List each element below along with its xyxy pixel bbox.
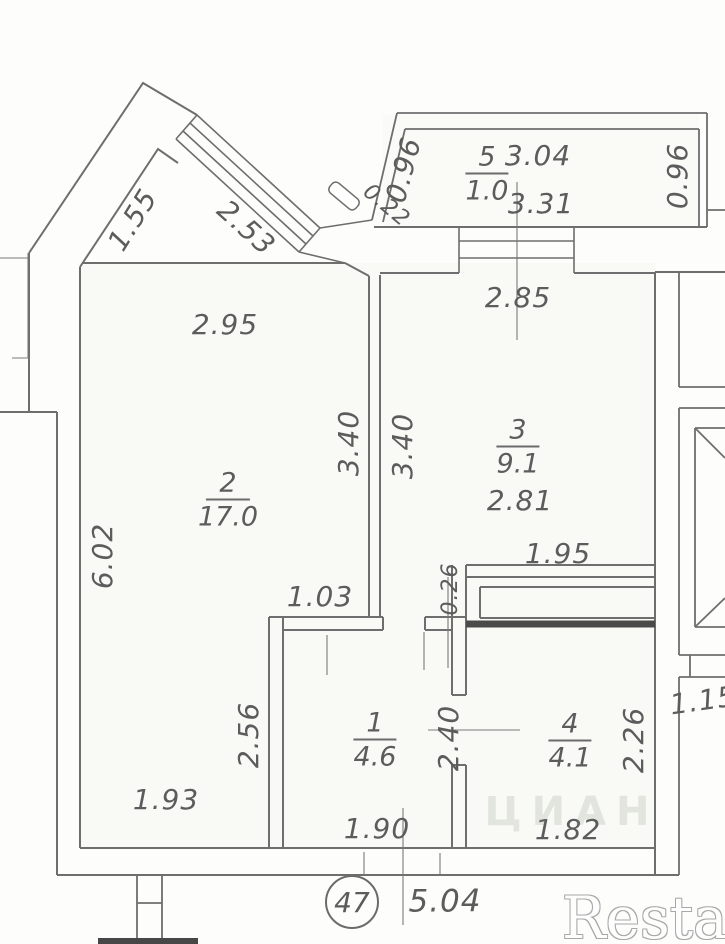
room-label-balcony: 5 1.0 <box>465 144 508 205</box>
dim-duct: 0.26 <box>440 563 462 616</box>
room-number: 2 <box>206 470 249 501</box>
dim-total-bottom: 5.04 <box>408 887 481 918</box>
dim-hall-wall: 2.40 <box>435 705 463 771</box>
dim-wall-kitchen-side: 3.40 <box>389 413 417 479</box>
dim-hall-bottom: 1.90 <box>344 815 410 843</box>
room-number: 4 <box>548 711 591 742</box>
entrance-stub <box>98 875 198 944</box>
floor-plan-page: 1.55 2.53 0.96 0.22 3.04 3.31 0.96 2.85 … <box>0 0 725 944</box>
dim-kitchen-top: 2.85 <box>485 284 551 312</box>
room-number: 3 <box>496 417 539 448</box>
dim-hall-left: 2.56 <box>235 702 263 768</box>
dim-living-bottom: 1.93 <box>133 786 199 814</box>
apartment-number-badge: 47 <box>325 875 379 929</box>
dim-living-top: 2.95 <box>192 311 258 339</box>
room-label-kitchen: 3 9.1 <box>496 417 539 478</box>
watermark-restate: Restate <box>562 884 725 944</box>
dim-balcony-top: 3.04 <box>505 142 571 170</box>
watermark-cian: ЦИАН <box>484 789 659 835</box>
dim-left-wall: 6.02 <box>89 523 117 589</box>
room-number: 5 <box>465 144 508 175</box>
room-label-bathroom: 4 4.1 <box>548 711 591 772</box>
dim-balcony-bottom: 3.31 <box>508 190 574 218</box>
dim-bath-right: 2.26 <box>620 707 648 773</box>
dim-wall-living-side: 3.40 <box>335 410 363 476</box>
dim-right-side: 1.15 <box>668 683 725 720</box>
room-area: 17.0 <box>198 501 258 531</box>
dim-kitchen-bottom: 1.95 <box>525 540 591 568</box>
room-area: 9.1 <box>496 448 539 478</box>
room-label-living: 2 17.0 <box>198 470 258 531</box>
apartment-number: 47 <box>334 886 370 919</box>
room-area: 4.6 <box>353 741 396 771</box>
room-area: 4.1 <box>548 742 591 772</box>
elevator-shaft <box>679 272 725 875</box>
room-label-hallway: 1 4.6 <box>353 710 396 771</box>
dim-kitchen-width: 2.81 <box>487 487 553 515</box>
balcony-door-leaf <box>327 180 361 212</box>
room-number: 1 <box>353 710 396 741</box>
dim-balcony-right: 0.96 <box>664 143 692 209</box>
dim-hall-top: 1.03 <box>287 583 353 611</box>
room-area: 1.0 <box>465 175 508 205</box>
